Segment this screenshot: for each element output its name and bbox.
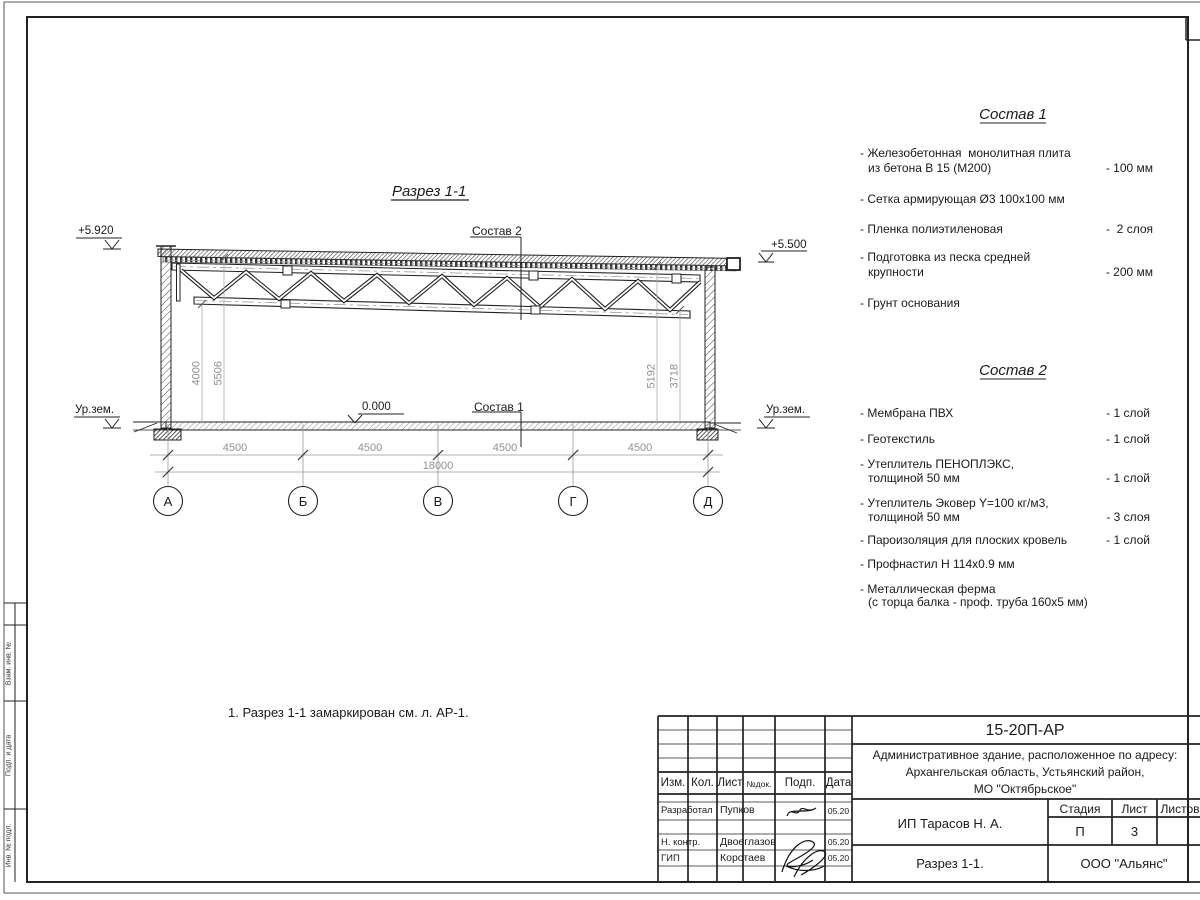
client-name: ИП Тарасов Н. А.	[852, 817, 1048, 830]
sostav1-item: - Сетка армирующая Ø3 100х100 мм	[860, 193, 1065, 205]
dim-span-4: 4500	[610, 443, 670, 454]
sostav2-value: - 3 слоя	[1032, 511, 1150, 523]
dim-5506: 5506	[214, 346, 225, 386]
dim-4000: 4000	[192, 346, 203, 386]
address-line2: Архангельская область, Устьянский район,	[855, 766, 1195, 778]
leader-sostav1-label: Состав 1	[474, 401, 524, 413]
side-stamp-podp: Подп. и дата	[6, 721, 13, 791]
sheet-value: 3	[1112, 825, 1157, 838]
sostav2-item: - Геотекстиль	[860, 433, 935, 445]
sostav2-item: толщиной 50 мм	[868, 472, 960, 484]
row-name: Двоеглазов	[720, 837, 776, 848]
sostav2-value: - 1 слой	[1032, 407, 1150, 419]
col-ndok: №док.	[743, 780, 775, 789]
elevation-right-label: +5.500	[771, 240, 807, 252]
sostav1-value: - 100 мм	[1035, 162, 1153, 174]
dim-total: 18000	[408, 461, 468, 472]
sostav1-item: - Железобетонная монолитная плита	[860, 147, 1071, 159]
dim-3718: 3718	[670, 349, 681, 389]
sostav2-value: - 1 слой	[1032, 534, 1150, 546]
company-name: ООО "Альянс"	[1048, 857, 1200, 870]
sostav1-value: - 200 мм	[1035, 266, 1153, 278]
sostav1-item: крупности	[868, 266, 924, 278]
axis-b: Б	[293, 495, 313, 508]
stage-value: П	[1048, 825, 1112, 838]
leader-sostav2-label: Состав 2	[472, 225, 522, 237]
col-izm: Изм.	[658, 778, 688, 790]
dim-span-1: 4500	[205, 443, 265, 454]
col-list: Лист	[717, 778, 743, 790]
dim-span-3: 4500	[475, 443, 535, 454]
sheets-label: Листов	[1157, 803, 1200, 815]
col-data: Дата	[825, 778, 852, 790]
sostav2-item: - Утеплитель ПЕНОПЛЭКС,	[860, 458, 1014, 470]
signature-strokes	[782, 808, 826, 877]
row-name: Коротаев	[720, 853, 765, 864]
axis-a: А	[158, 495, 178, 508]
address-line1: Административное здание, расположенное п…	[855, 749, 1195, 761]
axis-v: В	[428, 495, 448, 508]
sostav1-value: - 2 слоя	[1035, 223, 1153, 235]
sostav2-title: Состав 2	[963, 363, 1063, 378]
sostav2-value: - 1 слой	[1032, 433, 1150, 445]
axis-d: Д	[698, 495, 718, 508]
sostav1-item: из бетона В 15 (М200)	[868, 162, 991, 174]
col-podp: Подп.	[775, 778, 825, 790]
row-role: Н. контр.	[661, 838, 700, 848]
sostav1-item: - Грунт основания	[860, 297, 960, 309]
section-view-title: Разрез 1-1	[392, 184, 470, 199]
row-date: 05.20	[825, 838, 852, 847]
ground-level-left-label: Ур.зем.	[75, 405, 114, 417]
stage-label: Стадия	[1048, 803, 1112, 815]
drawing-note: 1. Разрез 1-1 замаркирован см. л. АР-1.	[228, 706, 469, 719]
row-role: ГИП	[661, 854, 680, 864]
doc-number: 15-20П-АР	[890, 723, 1160, 739]
sostav1-item: - Пленка полиэтиленовая	[860, 223, 1003, 235]
drawing-sheet: Разрез 1-1 +5.920 +5.500 Ур.зем. Ур.зем.…	[0, 0, 1200, 900]
sheet-title: Разрез 1-1.	[852, 857, 1048, 870]
sostav2-item: толщиной 50 мм	[868, 511, 960, 523]
sostav2-item: - Утеплитель Эковер Y=100 кг/м3,	[860, 497, 1049, 509]
sheet-label: Лист	[1112, 803, 1157, 815]
dim-5192: 5192	[647, 349, 658, 389]
ground-level-right-label: Ур.зем.	[766, 405, 805, 417]
sostav1-title: Состав 1	[963, 107, 1063, 122]
side-stamp-vzam: Взам. инв. №	[6, 629, 13, 699]
elevation-left-label: +5.920	[78, 226, 114, 238]
sostav1-item: - Подготовка из песка средней	[860, 251, 1030, 263]
row-role: Разработал	[661, 806, 713, 816]
sostav2-item: - Металлическая ферма	[860, 583, 996, 595]
row-date: 05.20	[825, 854, 852, 863]
row-name: Пупков	[720, 805, 755, 816]
side-stamp-inv: Инв. № подл.	[6, 811, 13, 881]
sostav2-item: - Мембрана ПВХ	[860, 407, 953, 419]
axis-g: Г	[563, 495, 583, 508]
zero-level-label: 0.000	[362, 402, 391, 414]
sostav2-item: - Профнастил Н 114х0.9 мм	[860, 558, 1015, 570]
sostav2-item: (с торца балка - проф. труба 160х5 мм)	[868, 596, 1088, 608]
col-kol: Кол.	[688, 778, 717, 790]
sostav2-value: - 1 слой	[1032, 472, 1150, 484]
dim-span-2: 4500	[340, 443, 400, 454]
address-line3: МО "Октябрьское"	[855, 783, 1195, 795]
row-date: 05.20	[825, 807, 852, 816]
